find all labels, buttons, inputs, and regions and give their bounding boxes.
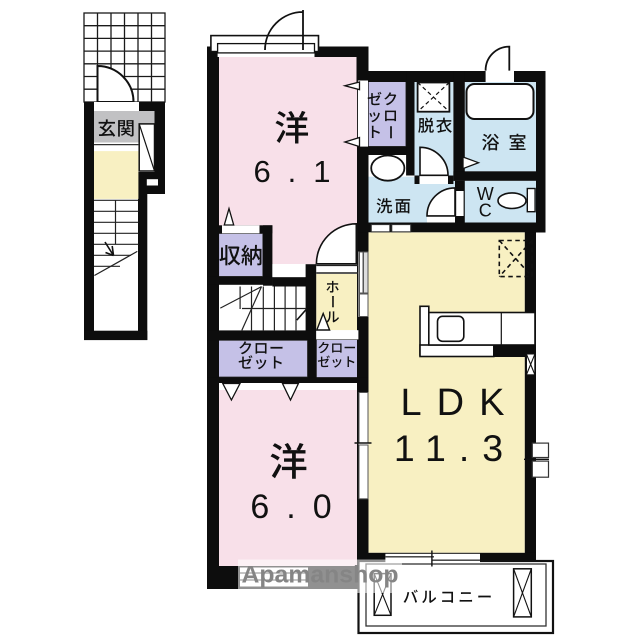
svg-text:6.1: 6.1	[253, 154, 347, 189]
svg-text:C: C	[479, 201, 492, 221]
svg-text:11.3: 11.3	[394, 427, 516, 469]
svg-text:Apamanshop: Apamanshop	[242, 562, 399, 589]
svg-text:LDK: LDK	[401, 382, 520, 424]
svg-text:6.0: 6.0	[250, 488, 348, 526]
